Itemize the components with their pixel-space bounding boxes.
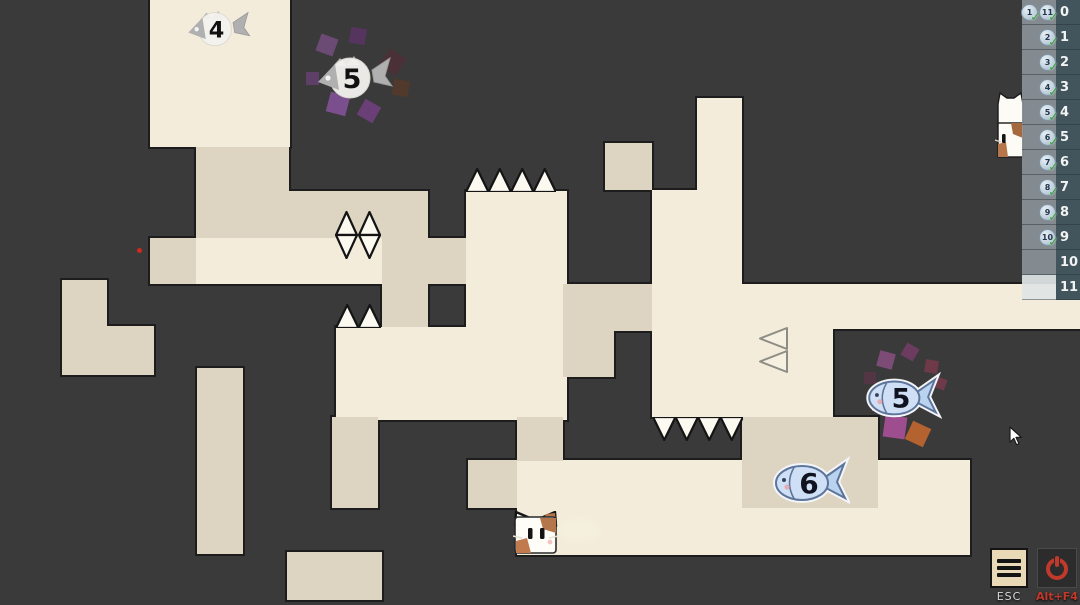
level-badge-cell: 1✓11✓	[1022, 0, 1056, 25]
medal-badge: 7✓	[1039, 154, 1056, 171]
medal-badge: 3✓	[1039, 54, 1056, 71]
level-badge-cell	[1022, 250, 1056, 275]
level-number-label: 6	[1056, 150, 1080, 175]
level-row-9[interactable]: 10✓9	[1022, 225, 1080, 250]
spikes-up	[466, 168, 556, 192]
terrain-block	[563, 331, 614, 377]
level-row-10[interactable]: 10	[1022, 250, 1080, 275]
level-row-4[interactable]: 5✓4	[1022, 100, 1080, 125]
level-badge-cell: 8✓	[1022, 175, 1056, 200]
medal-badge: 1✓	[1021, 4, 1038, 21]
level-badge-cell: 3✓	[1022, 50, 1056, 75]
checkmark-icon: ✓	[1048, 135, 1059, 150]
spikes-left	[758, 327, 788, 373]
terrain-block	[332, 417, 378, 508]
menu-button[interactable]: ESC	[986, 548, 1032, 603]
medal-badge: 8✓	[1039, 179, 1056, 196]
level-number-label: 2	[1056, 50, 1080, 75]
level-progress-sidebar: 1✓11✓02✓13✓24✓35✓46✓57✓68✓79✓810✓91011	[1022, 0, 1080, 300]
altf4-key-label: Alt+F4	[1034, 590, 1080, 603]
spikes-down	[653, 417, 743, 441]
level-number-label: 3	[1056, 75, 1080, 100]
fish-pickup-4: 4	[184, 6, 254, 54]
red-dot-marker	[137, 248, 142, 253]
level-badge-cell: 9✓	[1022, 200, 1056, 225]
level-row-11[interactable]: 11	[1022, 275, 1080, 300]
checkmark-icon: ✓	[1048, 110, 1059, 125]
quit-button[interactable]: Alt+F4	[1034, 548, 1080, 603]
level-number-label: 5	[1056, 125, 1080, 150]
level-badge-cell: 4✓	[1022, 75, 1056, 100]
cat-tower-sprite	[995, 92, 1025, 158]
level-number-label: 4	[1056, 100, 1080, 125]
level-badge-cell: 2✓	[1022, 25, 1056, 50]
fish-pickup-6: 6	[772, 452, 850, 510]
break-particle	[876, 350, 896, 370]
terrain-block	[652, 284, 833, 417]
level-number-label: 0	[1056, 0, 1080, 25]
svg-text:5: 5	[892, 384, 911, 415]
level-row-5[interactable]: 6✓5	[1022, 125, 1080, 150]
checkmark-icon: ✓	[1048, 10, 1059, 25]
level-row-6[interactable]: 7✓6	[1022, 150, 1080, 175]
terrain-block	[287, 552, 382, 600]
checkmark-icon: ✓	[1048, 85, 1059, 100]
level-number-label: 7	[1056, 175, 1080, 200]
terrain-block	[197, 368, 243, 554]
break-particle	[900, 342, 919, 361]
terrain-block	[62, 280, 107, 327]
svg-text:6: 6	[799, 467, 818, 500]
break-particle	[905, 421, 932, 448]
medal-badge: 9✓	[1039, 204, 1056, 221]
terrain-block	[605, 143, 652, 190]
terrain-block	[466, 191, 567, 331]
checkmark-icon: ✓	[1048, 185, 1059, 200]
terrain-block	[196, 147, 289, 238]
terrain-block	[382, 238, 428, 331]
fish-pickup-5: 5	[864, 368, 942, 424]
level-row-0[interactable]: 1✓11✓0	[1022, 0, 1080, 25]
game-screen: 4556 1✓11✓02✓13✓24✓35✓46✓57✓68✓79✓810✓91…	[0, 0, 1080, 605]
menu-list-icon	[990, 548, 1028, 588]
terrain-block	[652, 190, 742, 290]
power-icon	[1037, 548, 1077, 588]
player-cat	[513, 511, 558, 554]
level-number-label: 8	[1056, 200, 1080, 225]
level-badge-cell: 10✓	[1022, 225, 1056, 250]
checkmark-icon: ✓	[1048, 210, 1059, 225]
terrain-block	[62, 326, 154, 375]
terrain-block	[697, 98, 742, 198]
mouse-cursor	[1009, 426, 1024, 447]
level-row-1[interactable]: 2✓1	[1022, 25, 1080, 50]
fish-pickup-5: 5	[314, 50, 396, 108]
terrain-block	[336, 327, 567, 420]
medal-badge: 6✓	[1039, 129, 1056, 146]
level-number-label: 9	[1056, 225, 1080, 250]
level-highlight-cell	[1022, 275, 1056, 300]
medal-badge: 11✓	[1039, 4, 1056, 21]
level-row-3[interactable]: 4✓3	[1022, 75, 1080, 100]
checkmark-icon: ✓	[1048, 235, 1059, 250]
medal-badge: 5✓	[1039, 104, 1056, 121]
esc-key-label: ESC	[986, 590, 1032, 603]
level-badge-cell: 7✓	[1022, 150, 1056, 175]
game-world: 4556	[0, 0, 1080, 605]
medal-badge: 2✓	[1039, 29, 1056, 46]
terrain-block	[517, 417, 563, 461]
level-row-2[interactable]: 3✓2	[1022, 50, 1080, 75]
terrain-block	[563, 284, 652, 331]
level-row-7[interactable]: 8✓7	[1022, 175, 1080, 200]
terrain-block	[468, 460, 517, 508]
checkmark-icon: ✓	[1048, 160, 1059, 175]
checkmark-icon: ✓	[1048, 35, 1059, 50]
dust-particle	[556, 517, 602, 543]
svg-text:5: 5	[343, 64, 362, 95]
level-number-label: 11	[1056, 275, 1080, 300]
level-badge-cell: 6✓	[1022, 125, 1056, 150]
checkmark-icon: ✓	[1048, 60, 1059, 75]
level-row-8[interactable]: 9✓8	[1022, 200, 1080, 225]
svg-text:4: 4	[209, 17, 225, 43]
spikes-diamond	[335, 211, 381, 259]
level-badge-cell: 5✓	[1022, 100, 1056, 125]
break-particle	[349, 27, 368, 46]
terrain-block	[150, 238, 196, 284]
medal-badge: 10✓	[1039, 229, 1056, 246]
level-number-label: 1	[1056, 25, 1080, 50]
spikes-up	[336, 304, 381, 328]
medal-badge: 4✓	[1039, 79, 1056, 96]
level-number-label: 10	[1056, 250, 1080, 275]
